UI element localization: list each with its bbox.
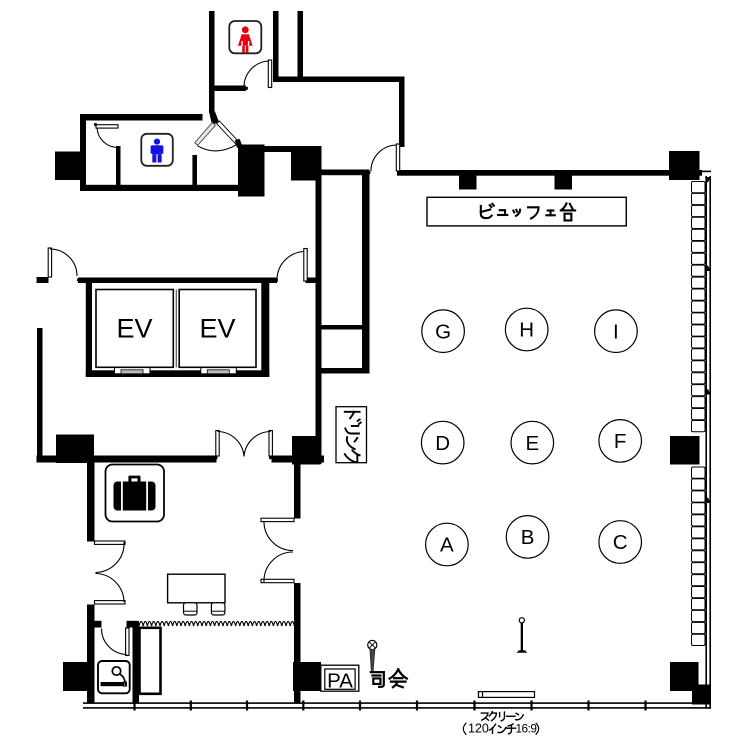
- svg-text:A: A: [440, 534, 454, 557]
- svg-text:F: F: [614, 430, 627, 453]
- svg-text:EV: EV: [199, 314, 235, 344]
- svg-text:I: I: [613, 320, 619, 343]
- svg-text:EV: EV: [116, 314, 152, 344]
- svg-text:D: D: [435, 432, 450, 455]
- svg-text:PA: PA: [327, 669, 353, 692]
- svg-text:16:9: 16:9: [516, 722, 537, 736]
- svg-text:E: E: [525, 432, 539, 455]
- svg-text:C: C: [613, 531, 628, 554]
- svg-text:120: 120: [468, 722, 489, 736]
- svg-text:B: B: [521, 526, 535, 549]
- svg-text:G: G: [435, 320, 451, 343]
- svg-text:H: H: [519, 319, 534, 342]
